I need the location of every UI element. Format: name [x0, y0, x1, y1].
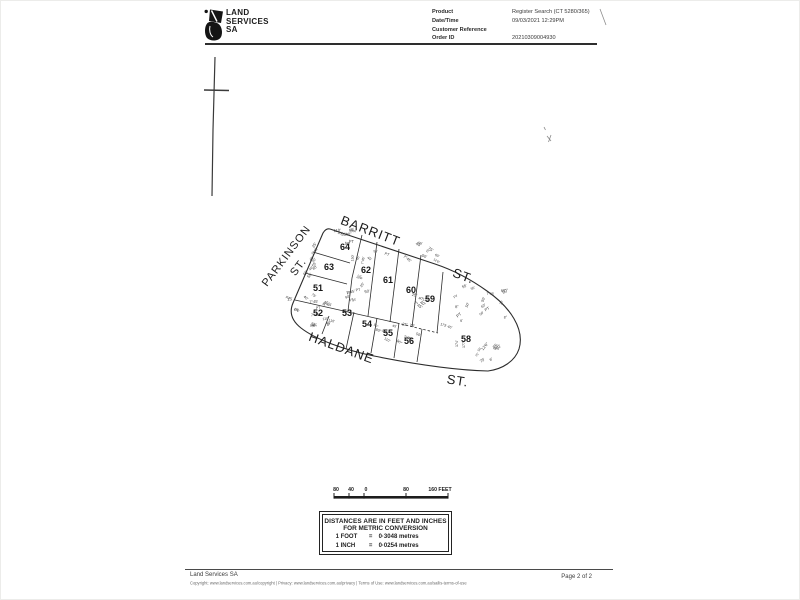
dimension-annotation: 8°	[455, 305, 460, 310]
lot-number-53: 53	[342, 308, 352, 318]
dimension-annotation: 45'	[351, 297, 357, 302]
footer-org: Land Services SA	[190, 572, 238, 578]
scale-bar-label: 80	[333, 487, 339, 493]
street-label-haldane: HALDANE	[307, 329, 376, 366]
dimension-annotation: 7°45'	[402, 254, 412, 264]
lot-number-62: 62	[361, 265, 371, 275]
value: 0·0254 metres	[379, 543, 449, 549]
dimension-annotation: 75'	[409, 323, 415, 329]
equals: =	[363, 534, 379, 540]
conversion-row-foot: 1 FOOT = 0·3048 metres	[323, 534, 449, 540]
dimension-annotation: 173' 46'	[440, 322, 453, 330]
conversion-subtitle: FOR METRIC CONVERSION	[323, 525, 449, 532]
dimension-annotation: 8°	[459, 318, 464, 323]
street-label-st: ST.	[446, 371, 470, 389]
dimension-annotation: 50'	[480, 296, 487, 303]
dimension-annotation: PT	[384, 252, 391, 258]
dimension-annotation: 40'	[418, 297, 423, 301]
lot-number-61: 61	[383, 275, 393, 285]
footer-copyright: Copyright: www.landservices.com.au/copyr…	[190, 581, 467, 586]
dimension-annotation: 12'6"	[480, 341, 490, 351]
scan-artifact-cross-tick	[204, 90, 229, 91]
metric-conversion-inner: DISTANCES ARE IN FEET AND INCHES FOR MET…	[322, 514, 450, 553]
scan-artifact-mark	[600, 9, 606, 25]
dimension-annotation: 90°	[396, 339, 403, 346]
dimension-annotation: 75'	[479, 357, 486, 364]
document-page: LAND SERVICES SA Product Register Search…	[0, 0, 800, 600]
dimension-annotation: 75'	[346, 291, 352, 296]
conversion-title: DISTANCES ARE IN FEET AND INCHES	[323, 518, 449, 525]
dimension-annotation: 7°45'	[309, 299, 318, 305]
page-number: Page 2 of 2	[530, 574, 592, 580]
scale-bar-label: 40	[348, 487, 354, 493]
dimension-annotation: 55'	[373, 249, 378, 253]
street-label-st: ST.	[451, 265, 477, 287]
street-label-parkinson: PARKINSON	[260, 223, 314, 289]
dimension-annotation: PT	[453, 294, 459, 299]
survey-plan: 90°50'45'110'75'60'PT60'55'7°45'55'40'55…	[0, 0, 800, 600]
dimension-annotation: 45'	[356, 255, 361, 261]
scan-artifact-mark	[544, 127, 546, 130]
lot-number-52: 52	[313, 308, 323, 318]
dimension-annotation: 8°	[504, 315, 508, 319]
lot-number-64: 64	[340, 242, 350, 252]
dimension-annotation: 174'	[455, 340, 459, 347]
dimension-annotation: 45'	[415, 241, 422, 248]
scale-bar-label: 80	[403, 487, 409, 493]
dimension-annotation: 50'	[421, 253, 428, 260]
dimension-annotation: 40'	[303, 295, 310, 302]
scale-bar	[334, 496, 448, 499]
dimension-annotation: 8°	[489, 356, 495, 362]
dimension-annotation: 150'	[350, 254, 355, 261]
lot-boundary-line	[390, 249, 399, 322]
scale-bar-label: 160 FEET	[428, 487, 452, 493]
dimension-annotation: 25'	[402, 321, 408, 327]
lot-number-58: 58	[461, 334, 471, 344]
lot-number-56: 56	[404, 336, 414, 346]
dimension-annotation: 7°45'	[360, 256, 365, 265]
dimension-annotation: 55'	[341, 232, 347, 237]
dimension-annotation: 7°45'	[324, 303, 333, 307]
dimension-annotation: 110'	[322, 317, 329, 322]
conversion-row-inch: 1 INCH = 0·0254 metres	[323, 543, 449, 549]
dimension-annotation: 110'	[333, 228, 341, 234]
unit: 1 FOOT	[336, 534, 363, 540]
dimension-annotation: 50'	[479, 310, 485, 316]
lot-number-63: 63	[324, 262, 334, 272]
dimension-annotation: 45'	[366, 256, 372, 262]
scan-artifact-vertical-line	[212, 57, 215, 196]
dimension-annotation: 60'	[501, 288, 506, 292]
dimension-annotation: PT	[355, 288, 361, 292]
equals: =	[363, 543, 379, 549]
dimension-annotation: 7°45'	[487, 292, 495, 296]
footer-rule	[185, 569, 613, 570]
dimension-annotation: 50'	[465, 302, 470, 308]
dimension-annotation: 25'	[287, 296, 293, 302]
dimension-annotation: 25'	[359, 282, 365, 288]
lot-number-51: 51	[313, 283, 323, 293]
unit: 1 INCH	[336, 543, 363, 549]
metric-conversion-box: DISTANCES ARE IN FEET AND INCHES FOR MET…	[319, 511, 452, 555]
dimension-annotation: 50'	[364, 288, 370, 294]
scan-artifact-mark	[547, 135, 551, 142]
lot-number-59: 59	[425, 294, 435, 304]
lot-number-54: 54	[362, 319, 372, 329]
value: 0·3048 metres	[379, 534, 449, 540]
lot-number-60: 60	[406, 285, 416, 295]
lot-number-55: 55	[383, 328, 393, 338]
scale-bar-label: 0	[365, 487, 368, 493]
